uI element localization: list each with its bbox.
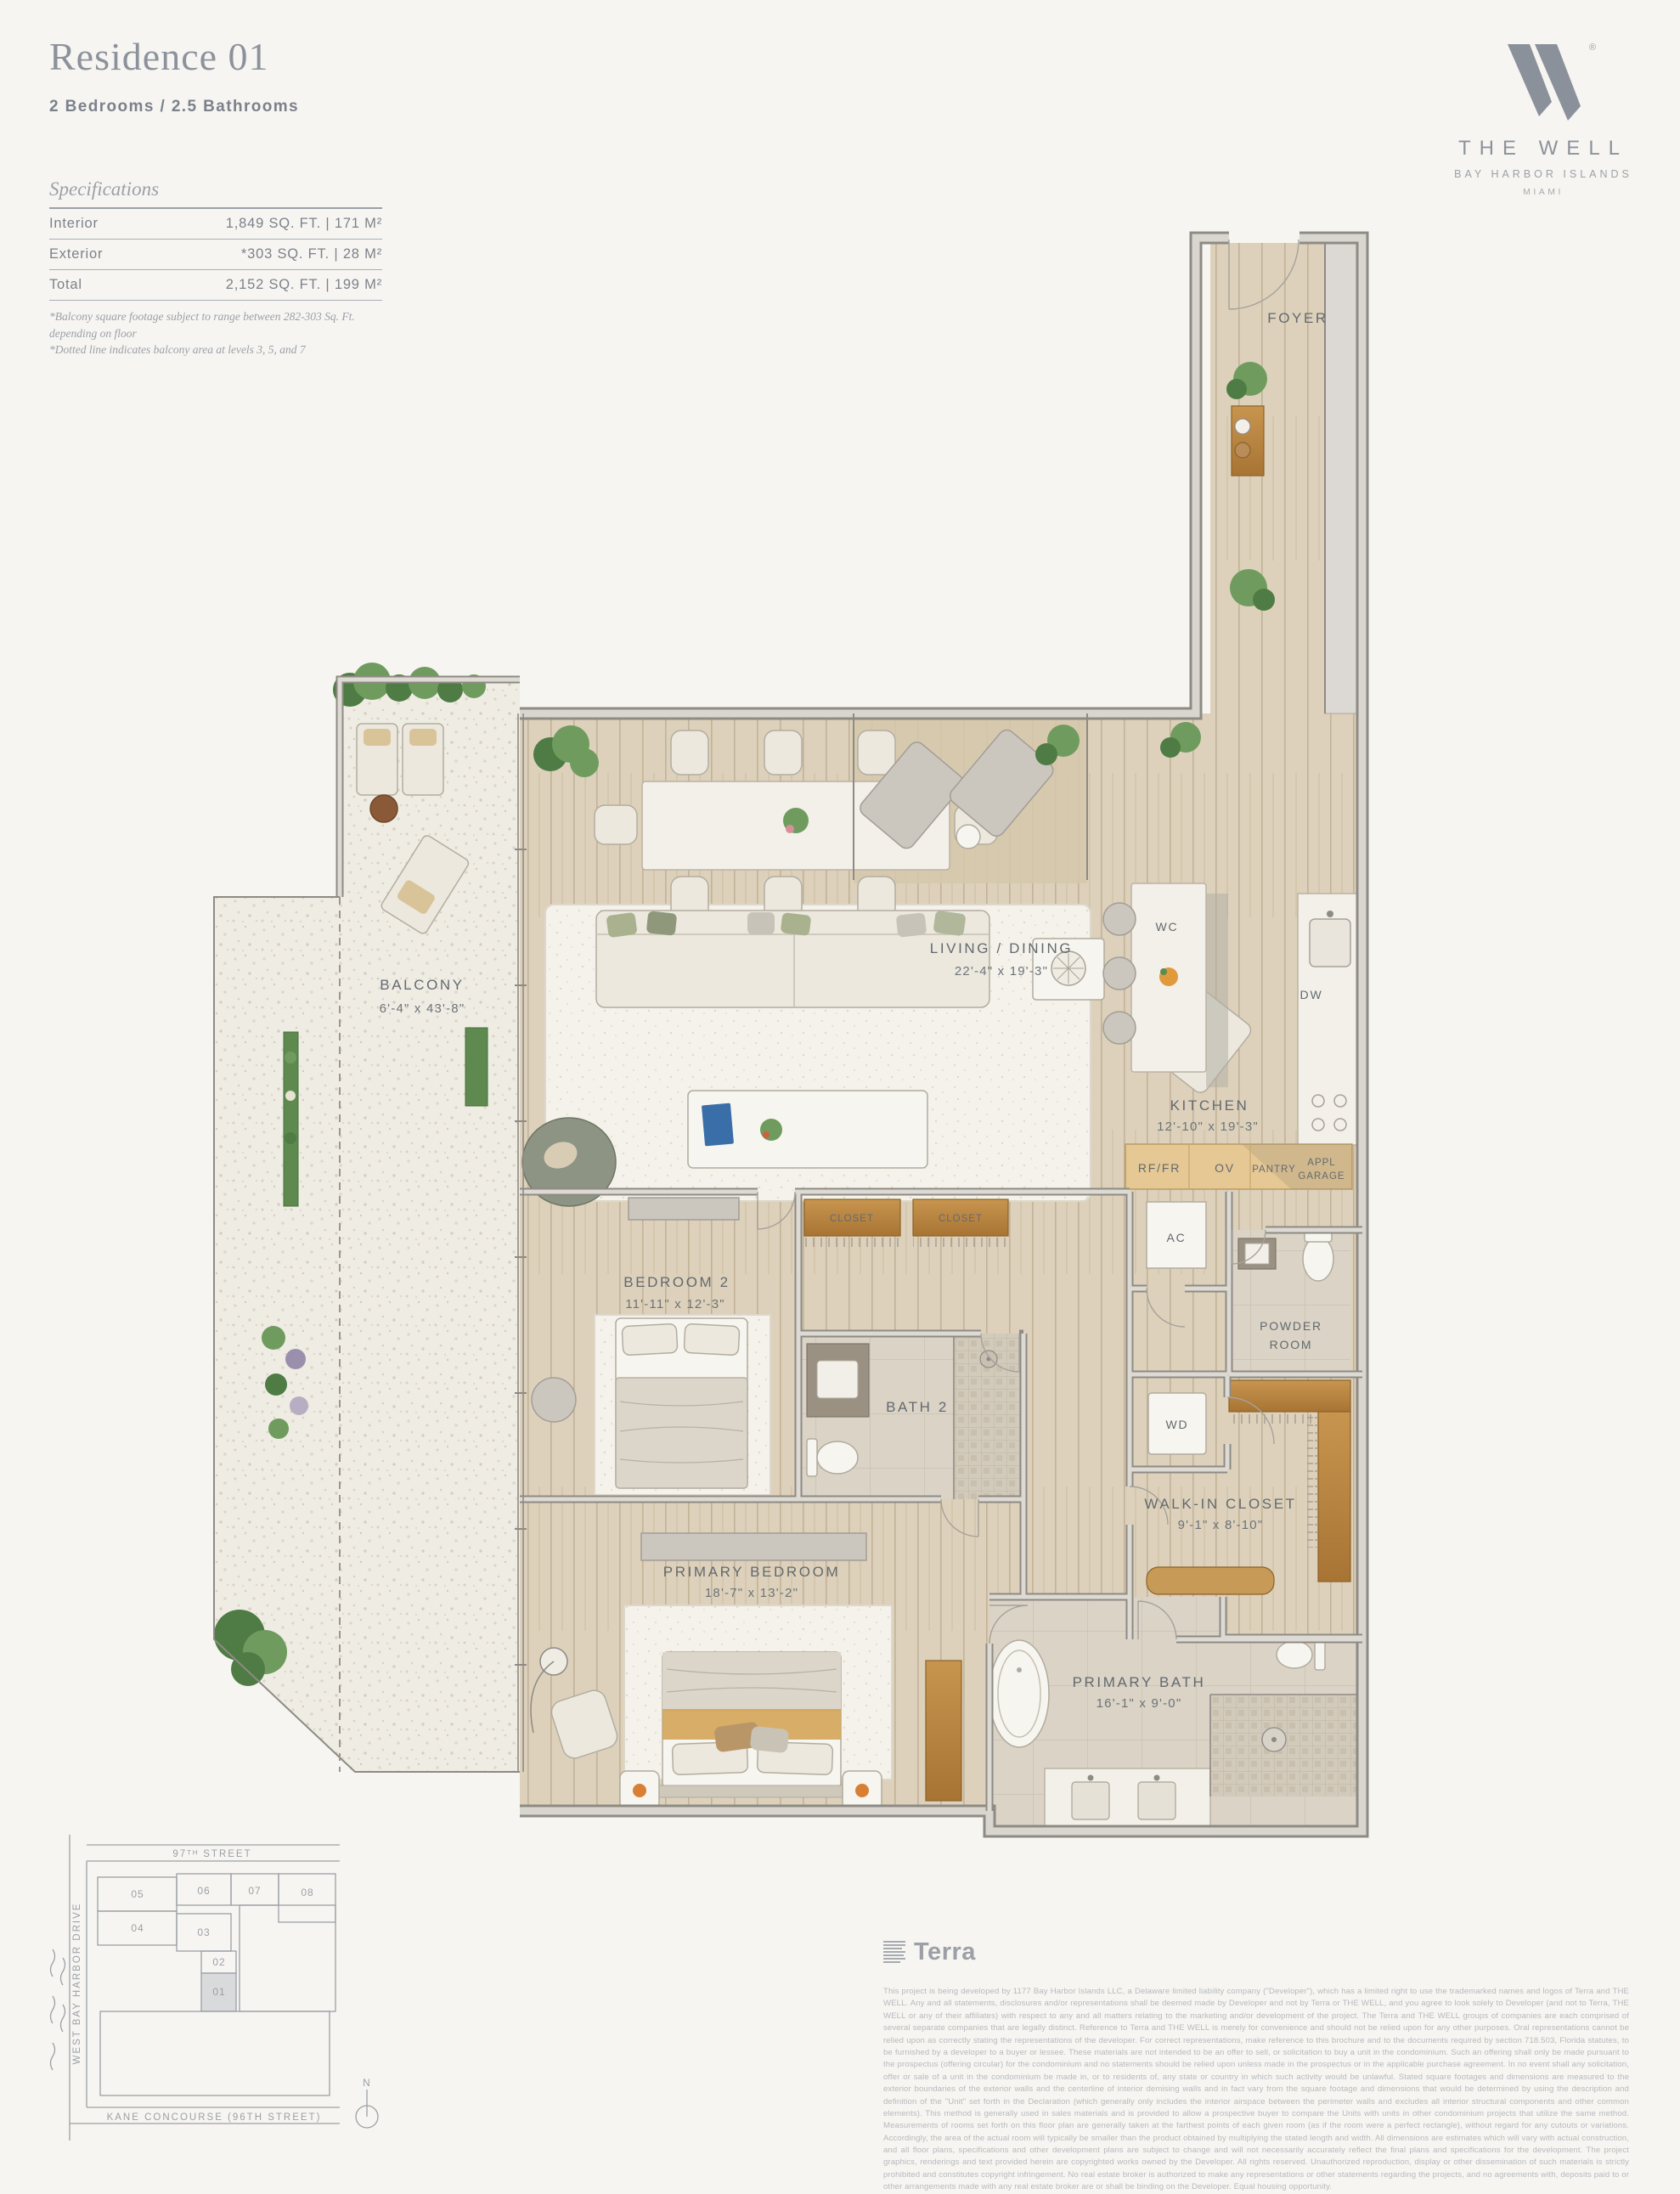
- coffee-table-book: [702, 1103, 734, 1147]
- dims-primary-bath: 16'-1" x 9'-0": [1097, 1696, 1182, 1711]
- primary-duvet: [662, 1652, 841, 1712]
- label-ac: AC: [1166, 1231, 1186, 1244]
- label-closet-a: CLOSET: [830, 1214, 874, 1224]
- kitchen-sink: [1310, 919, 1350, 967]
- balcony-round-table: [370, 795, 397, 822]
- walkin-bench: [1147, 1567, 1274, 1594]
- site-key-map: 97ᵀᴴ STREET WEST BAY HARBOR DRIVE KANE C…: [51, 1835, 379, 2140]
- walkin-shelf-right: [1318, 1412, 1350, 1582]
- unit-label-06: 06: [197, 1885, 210, 1897]
- alcove-side-table: [956, 825, 980, 849]
- island-stool: [1103, 903, 1136, 935]
- label-kitchen: KITCHEN: [1170, 1097, 1249, 1114]
- water-waves-icon: [51, 1949, 65, 2070]
- street-label-top: 97ᵀᴴ STREET: [172, 1849, 251, 1859]
- dims-kitchen: 12'-10" x 19'-3": [1157, 1120, 1259, 1134]
- building-footprint: [98, 1874, 335, 2095]
- walkin-shelf-top: [1229, 1380, 1350, 1412]
- podium-block: [100, 2011, 330, 2095]
- unit-label-05: 05: [131, 1888, 144, 1900]
- bed2-pillow: [684, 1323, 740, 1355]
- label-foyer: FOYER: [1267, 310, 1328, 326]
- unit-label-08: 08: [301, 1887, 313, 1898]
- label-primary-bath: PRIMARY BATH: [1073, 1674, 1206, 1690]
- unit-label-03: 03: [197, 1926, 210, 1938]
- bedroom2-round-chair: [532, 1378, 576, 1422]
- label-appl: APPL: [1307, 1158, 1335, 1168]
- closet-a-hangers: [804, 1237, 900, 1248]
- label-pantry: PANTRY: [1252, 1165, 1296, 1175]
- planter-bloom: [285, 1091, 296, 1101]
- alcove-plant: [1035, 743, 1057, 765]
- street-label-bottom: KANE CONCOURSE (96TH STREET): [107, 2112, 322, 2123]
- dining-centerpiece-bloom: [786, 825, 794, 833]
- label-ov: OV: [1215, 1161, 1235, 1175]
- primary-wardrobe: [926, 1661, 961, 1801]
- dining-chair: [671, 730, 708, 775]
- street-label-left: WEST BAY HARBOR DRIVE: [72, 1903, 82, 2065]
- console-bowl: [1235, 419, 1250, 434]
- dims-walkin: 9'-1" x 8'-10": [1178, 1518, 1264, 1532]
- terra-wordmark: Terra: [914, 1938, 976, 1966]
- label-bath2: BATH 2: [886, 1399, 949, 1415]
- primary-vanity: [1045, 1768, 1210, 1831]
- compass-north-label: N: [363, 2077, 371, 2089]
- powder-sink: [1245, 1244, 1269, 1264]
- bath2-toilet: [817, 1441, 858, 1474]
- primary-toilet: [1277, 1641, 1312, 1668]
- planter-bloom: [285, 1132, 296, 1144]
- label-closet-b: CLOSET: [939, 1214, 983, 1224]
- nightstand-lamp: [633, 1784, 646, 1797]
- developer-logo: Terra: [883, 1938, 976, 1966]
- bed2-blanket: [616, 1378, 747, 1488]
- floor-plan-canvas: FOYER LIVING / DINING 22'-4" x 19'-3" BA…: [0, 0, 1680, 2174]
- closet-b-hangers: [913, 1237, 1008, 1248]
- label-wd: WD: [1166, 1418, 1189, 1431]
- label-bedroom2: BEDROOM 2: [623, 1274, 730, 1290]
- terra-icon: [883, 1940, 905, 1966]
- label-wc: WC: [1156, 920, 1179, 933]
- island-shadow: [1206, 894, 1228, 1087]
- compass-icon: N: [356, 2077, 378, 2128]
- label-garage: GARAGE: [1298, 1171, 1345, 1182]
- dims-balcony: 6'-4" x 43'-8": [380, 1001, 465, 1016]
- legal-disclaimer: This project is being developed by 1177 …: [883, 1986, 1629, 2194]
- vanity-faucet: [1154, 1775, 1160, 1781]
- unit-label-07: 07: [248, 1885, 261, 1897]
- label-powder: POWDER: [1260, 1319, 1322, 1333]
- foyer-console: [1232, 406, 1264, 476]
- island-stool: [1103, 957, 1136, 990]
- garden-planter-box: [465, 1028, 488, 1106]
- lounge-pillow: [409, 729, 437, 746]
- bed2-pillow: [622, 1323, 678, 1355]
- label-balcony: BALCONY: [380, 977, 464, 993]
- walkin-hangers-right: [1307, 1412, 1318, 1548]
- walkin-hangers-top: [1229, 1413, 1314, 1424]
- planter-bloom: [285, 1052, 296, 1063]
- balcony-floor: [214, 680, 520, 1772]
- island-stool: [1103, 1012, 1136, 1044]
- primary-headboard: [656, 1785, 848, 1797]
- unit-label-01: 01: [212, 1986, 225, 1998]
- bath2-toilet-tank: [807, 1439, 817, 1476]
- label-rf-fr: RF/FR: [1138, 1161, 1181, 1175]
- coffee-table-plant: [760, 1119, 782, 1141]
- dining-chair: [595, 805, 637, 844]
- unit-label-02: 02: [212, 1956, 225, 1968]
- lounge-pillow: [364, 729, 391, 746]
- sink-faucet: [1327, 911, 1333, 917]
- primary-dresser: [641, 1533, 866, 1560]
- nightstand-lamp: [855, 1784, 869, 1797]
- label-dw: DW: [1300, 988, 1323, 1001]
- label-living-dining: LIVING / DINING: [930, 940, 1073, 956]
- dims-primary-bedroom: 18'-7" x 13'-2": [705, 1586, 798, 1600]
- dining-chair: [858, 730, 895, 775]
- dims-bedroom2: 11'-11" x 12'-3": [625, 1297, 725, 1311]
- primary-accent-pillow: [750, 1726, 790, 1753]
- dims-living-dining: 22'-4" x 19'-3": [955, 964, 1048, 979]
- primary-toilet-tank: [1315, 1639, 1325, 1670]
- label-primary-bedroom: PRIMARY BEDROOM: [663, 1564, 840, 1580]
- coffee-table-bloom: [763, 1131, 770, 1138]
- tower-block: [240, 1905, 335, 2011]
- vanity-sink: [1138, 1782, 1175, 1819]
- primary-shower-floor: [1210, 1695, 1362, 1796]
- bedroom2-dresser: [629, 1198, 739, 1220]
- label-powder-room: ROOM: [1270, 1338, 1313, 1351]
- powder-toilet: [1303, 1237, 1333, 1281]
- vanity-faucet: [1088, 1775, 1094, 1781]
- label-walkin: WALK-IN CLOSET: [1144, 1496, 1296, 1512]
- bath2-sink: [817, 1361, 858, 1398]
- unit-label-04: 04: [131, 1922, 144, 1934]
- vanity-sink: [1072, 1782, 1109, 1819]
- console-bowl: [1235, 443, 1250, 458]
- dining-chair: [764, 730, 802, 775]
